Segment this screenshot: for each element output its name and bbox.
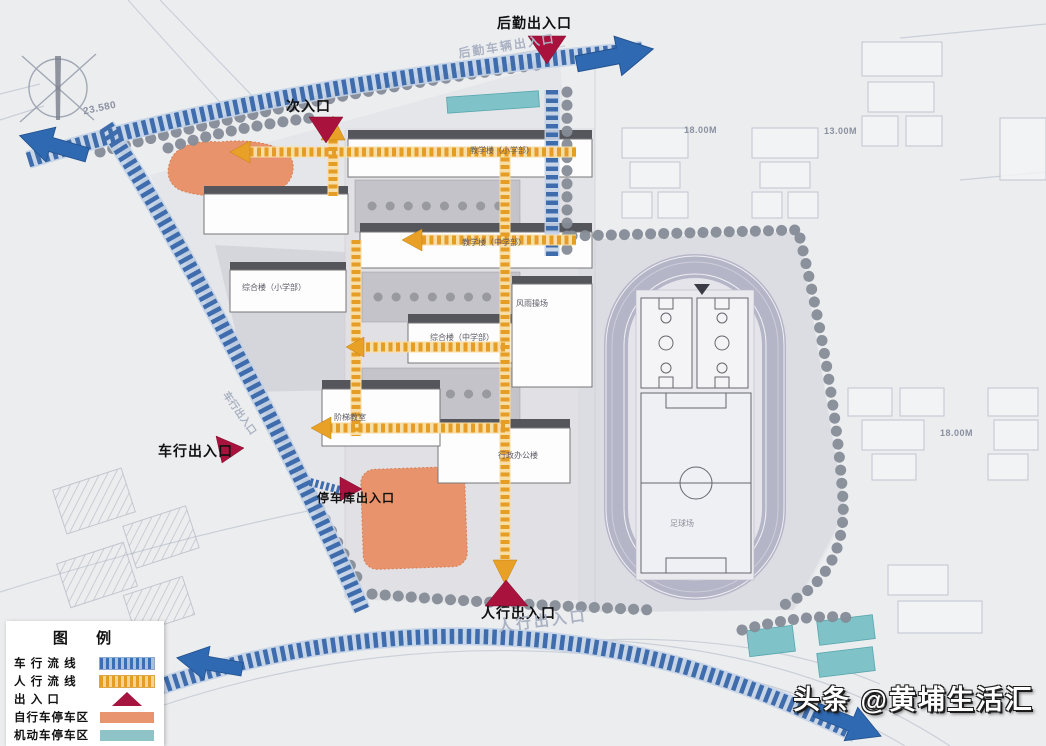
watermark-text: 头条 @黄埔生活汇 — [793, 686, 1034, 716]
legend-title: 图 例 — [20, 627, 156, 648]
site-plan-screenshot: 后勤出入口 次入口 车行出入口 停车库出入口 人行出入口 后勤车辆出入口 人行出… — [0, 0, 1046, 746]
vehicle-entrance-label: 车行出入口 — [158, 444, 233, 459]
logistics-entrance-label: 后勤出入口 — [497, 16, 572, 31]
dimension-label: 18.00M — [684, 126, 717, 136]
complex-primary-label: 综合楼（小学部） — [242, 284, 306, 293]
soccer-field — [641, 393, 751, 573]
complex-middle-label: 综合楼（中学部） — [430, 334, 494, 343]
entrance-swatch — [112, 692, 142, 706]
secondary-entrance-label: 次入口 — [286, 99, 331, 114]
gym-label: 风雨操场 — [516, 300, 548, 309]
garage-entrance-label: 停车库出入口 — [317, 492, 395, 505]
teaching-primary-label: 教学楼（小学部） — [470, 147, 534, 156]
soccer-field-label: 足球场 — [670, 520, 694, 529]
admin-label: 行政办公楼 — [498, 452, 538, 461]
dimension-label: 18.00M — [940, 429, 973, 439]
legend-item-car-parking: 机动车停车区 — [14, 726, 156, 744]
dimension-label: 13.00M — [824, 127, 857, 137]
legend-item-vehicle-flow: 车 行 流 线 — [14, 654, 156, 672]
car-parking-swatch — [100, 730, 154, 741]
bike-parking-swatch — [100, 712, 154, 723]
pedestrian-flow-swatch — [99, 675, 155, 688]
legend-box: 图 例 车 行 流 线 人 行 流 线 出 入 口 自行车停车区 机动车停车区 — [6, 621, 164, 746]
vehicle-flow-swatch — [99, 657, 155, 670]
legend-item-pedestrian-flow: 人 行 流 线 — [14, 672, 156, 690]
lecture-hall-label: 阶梯教室 — [334, 414, 366, 423]
legend-item-bike-parking: 自行车停车区 — [14, 708, 156, 726]
legend-item-entrance: 出 入 口 — [14, 690, 156, 708]
teaching-middle-label: 教学楼（中学部） — [462, 239, 526, 248]
